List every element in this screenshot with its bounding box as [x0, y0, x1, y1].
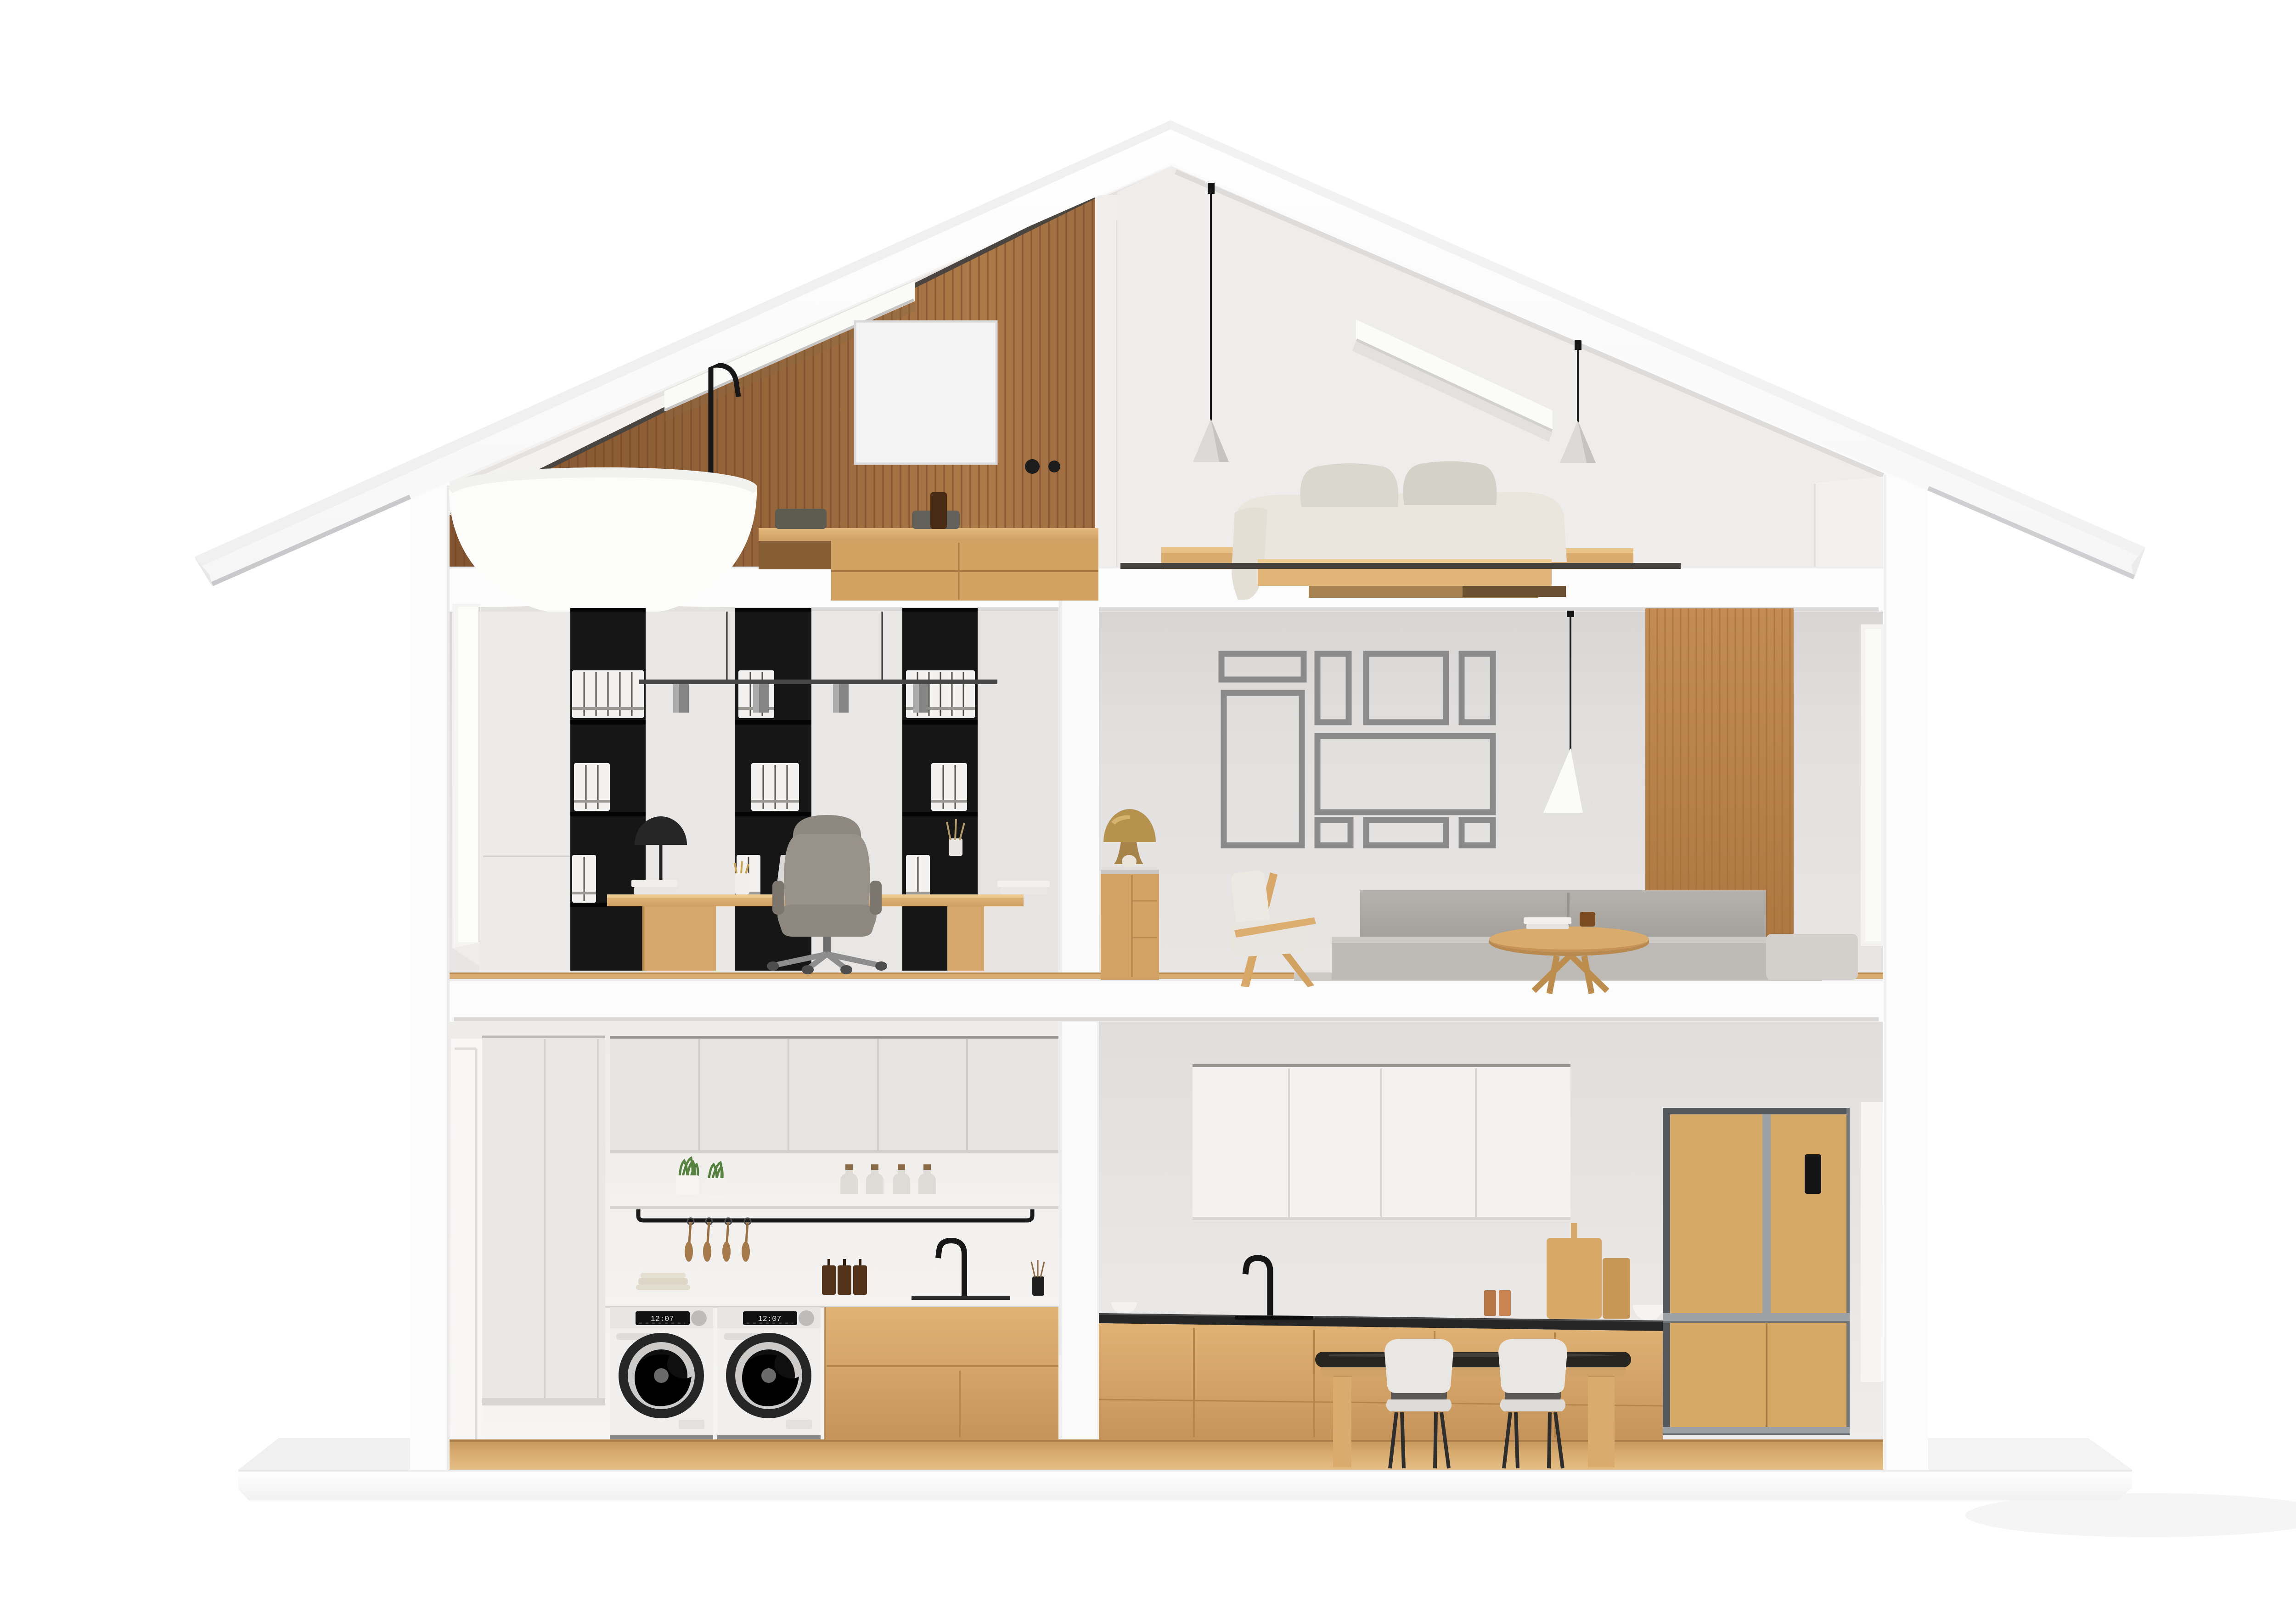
svg-text:12:07: 12:07 — [758, 1315, 781, 1324]
svg-text:12:07: 12:07 — [650, 1315, 674, 1324]
